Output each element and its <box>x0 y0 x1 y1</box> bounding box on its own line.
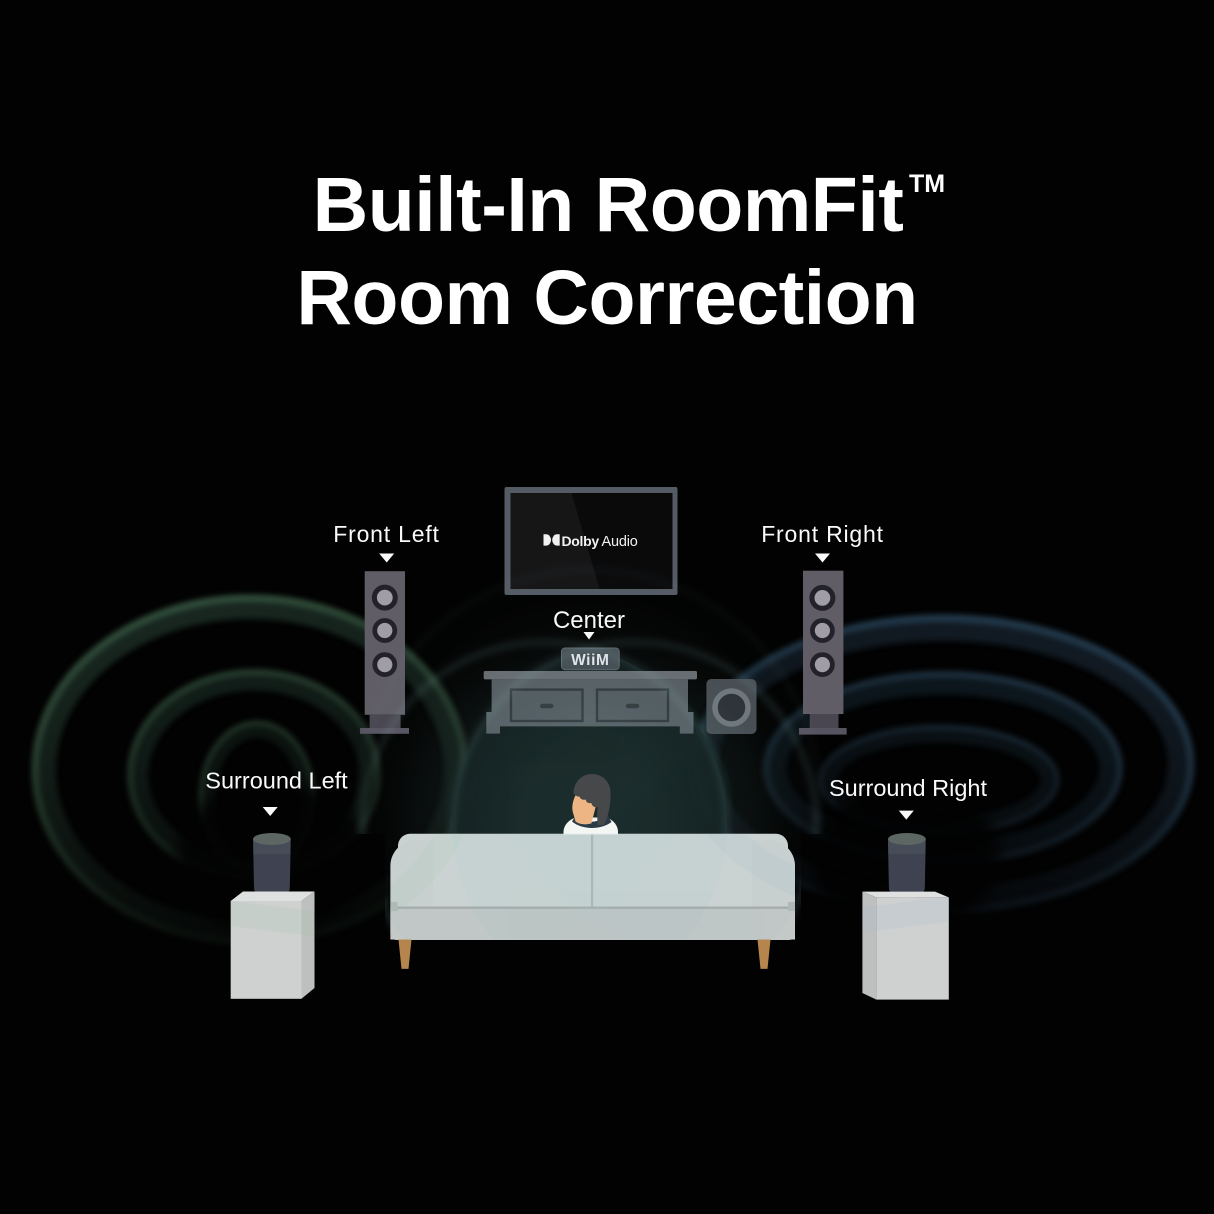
svg-text:Dolby: Dolby <box>562 533 600 549</box>
svg-text:Room Correction: Room Correction <box>296 255 917 341</box>
svg-text:Surround Right: Surround Right <box>829 775 988 801</box>
svg-text:Built-In RoomFit: Built-In RoomFit <box>313 162 904 248</box>
svg-text:Audio: Audio <box>602 534 638 550</box>
svg-text:Surround Left: Surround Left <box>205 768 348 794</box>
svg-text:Front Left: Front Left <box>333 521 439 547</box>
svg-text:Front Right: Front Right <box>761 521 884 547</box>
svg-text:TM: TM <box>909 170 945 198</box>
